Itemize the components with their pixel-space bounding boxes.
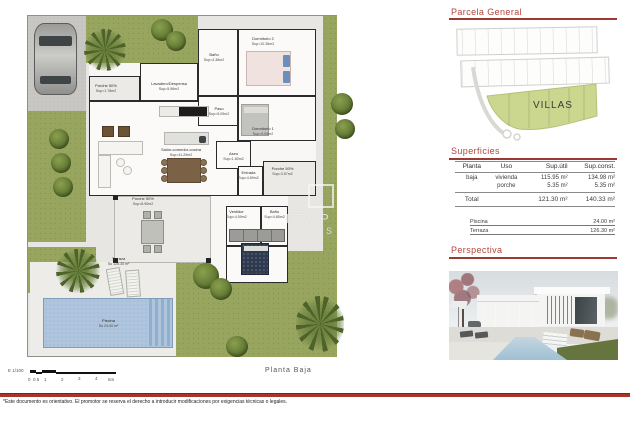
room-label: Porche 50%Sup=8.90m2 xyxy=(123,197,163,206)
perspective-render xyxy=(449,271,618,360)
room-label: Porche 50%Sup=1.78m2 xyxy=(86,84,126,93)
room-label: TerrazaSu 126.30 m² xyxy=(96,257,141,266)
dining-chair xyxy=(200,175,207,182)
coffee-table xyxy=(123,166,132,175)
room-label: Dormitorio 3Sup=13.68m2 xyxy=(229,266,279,275)
col-header: Uso xyxy=(489,163,525,170)
room-label: Dormitorio 2Sup=10.36m2 xyxy=(233,37,293,46)
dining-chair xyxy=(161,159,168,166)
bush xyxy=(53,177,73,197)
dining-chair xyxy=(161,167,168,174)
room-label: PasoSup=5.09m2 xyxy=(199,107,239,116)
room-label: PiscinaSu 24.00 m² xyxy=(86,319,131,328)
section-rule xyxy=(449,18,617,20)
car-windshield xyxy=(39,36,72,46)
patio-table xyxy=(141,220,164,244)
pillow xyxy=(283,55,290,67)
bush xyxy=(226,336,248,357)
bush xyxy=(51,153,71,173)
scale-tick: 5m xyxy=(108,377,114,382)
sun-lounger xyxy=(125,270,141,298)
patio-chair xyxy=(154,245,162,253)
palm-tree xyxy=(84,29,126,71)
sink xyxy=(199,136,206,143)
bush xyxy=(331,93,353,115)
surfaces-table: Planta Uso Sup.útil Sup.const. baja vivi… xyxy=(455,161,615,211)
section-title-perspectiva: Perspectiva xyxy=(451,245,502,255)
sofa-chaise xyxy=(98,155,111,188)
sofa xyxy=(98,141,143,155)
section-title-parcela: Parcela General xyxy=(451,7,522,17)
extra-row-terraza: Terraza 126.30 m² xyxy=(470,228,615,235)
pillow xyxy=(244,246,268,251)
wood-slat-wall xyxy=(547,296,575,324)
footer-disclaimer: *Este documento es orientativo. El promo… xyxy=(3,399,423,405)
armchair xyxy=(102,126,114,137)
bush xyxy=(49,129,69,149)
room-bano-1 xyxy=(198,29,238,96)
room-label: EntradaSup=4.69m2 xyxy=(231,171,266,180)
site-plan: Dormitorio 2Sup=10.36m2 BañoSup=4.38m2 L… xyxy=(27,15,337,357)
pillow xyxy=(283,71,290,83)
room-label: VestidorSup=4.59m2 xyxy=(219,210,254,219)
car xyxy=(34,23,77,95)
room-label: Dormitorio 1Sup=9.09m2 xyxy=(233,127,293,136)
watermark-text-2: S xyxy=(326,226,376,236)
patio-chair xyxy=(143,245,151,253)
section-title-superficies: Superficies xyxy=(451,146,500,156)
room-label: AseoSup=1.80m2 xyxy=(216,152,251,161)
table-header-row: Planta Uso Sup.útil Sup.const. xyxy=(455,163,615,170)
parcela-map: VILLAS xyxy=(449,26,618,144)
parasol-pole xyxy=(458,307,459,327)
section-rule xyxy=(449,257,617,259)
armchair xyxy=(118,126,130,137)
bush xyxy=(166,31,186,51)
villas-label: VILLAS xyxy=(533,100,573,111)
extra-row-piscina: Piscina 24.00 m² xyxy=(470,219,615,226)
pool-steps-render xyxy=(542,332,567,346)
page: Dormitorio 2Sup=10.36m2 BañoSup=4.38m2 L… xyxy=(0,0,630,423)
glass-wall-right xyxy=(575,297,597,324)
scale-tick: 2 xyxy=(61,377,64,382)
table-row: porche 5.35 m² 5.35 m² xyxy=(455,183,615,189)
dining-chair xyxy=(161,175,168,182)
footer-red-band xyxy=(0,393,630,397)
room-label: Salón-comedor-cocinaSup=41.29m2 xyxy=(146,148,216,157)
room-label: Porche 50%Sup=3.57m2 xyxy=(265,167,300,176)
wardrobe xyxy=(229,229,285,242)
watermark-text: PROP xyxy=(286,211,376,226)
scale-tick: 0.5 xyxy=(33,377,39,382)
table-total-row: Total 121.30 m² 140.33 m² xyxy=(455,196,615,203)
table-row: baja vivienda 115.95 m² 134.98 m² xyxy=(455,175,615,181)
brand-watermark: PROP S xyxy=(286,184,376,254)
pool-steps xyxy=(149,299,171,346)
pillow xyxy=(244,107,268,113)
dining-chair xyxy=(200,159,207,166)
room-label: BañoSup=4.38m2 xyxy=(194,53,234,62)
scale-tick: 0 xyxy=(28,377,31,382)
bed-dormitorio-2 xyxy=(246,51,291,86)
section-rule xyxy=(449,158,617,160)
patio-chair xyxy=(143,211,151,219)
palm-tree xyxy=(296,296,344,352)
room-label: Lavadero/DespensaSup=5.96m2 xyxy=(141,82,197,91)
kitchen-island xyxy=(164,132,209,145)
patio-chair xyxy=(154,211,162,219)
coffee-table xyxy=(116,158,125,167)
bush xyxy=(210,278,232,300)
scale-label: E 1/100 xyxy=(8,368,24,373)
parasol xyxy=(450,301,468,308)
col-header: Sup.const. xyxy=(570,163,615,170)
dining-table xyxy=(167,158,201,183)
scale-bar xyxy=(30,370,116,374)
scale-tick: 4 xyxy=(95,376,98,381)
bush xyxy=(335,119,355,139)
brand-logo-icon xyxy=(308,184,334,208)
scale-tick: 1 xyxy=(44,377,47,382)
car-rear-window xyxy=(40,76,71,84)
col-header: Sup.útil xyxy=(524,163,569,170)
glass-wall-left xyxy=(483,302,533,329)
porch-column xyxy=(113,195,118,200)
plan-title: Planta Baja xyxy=(265,367,312,374)
col-header: Planta xyxy=(455,163,489,170)
palm-tree xyxy=(56,249,100,293)
dining-chair xyxy=(200,167,207,174)
scale-tick: 3 xyxy=(78,376,81,381)
